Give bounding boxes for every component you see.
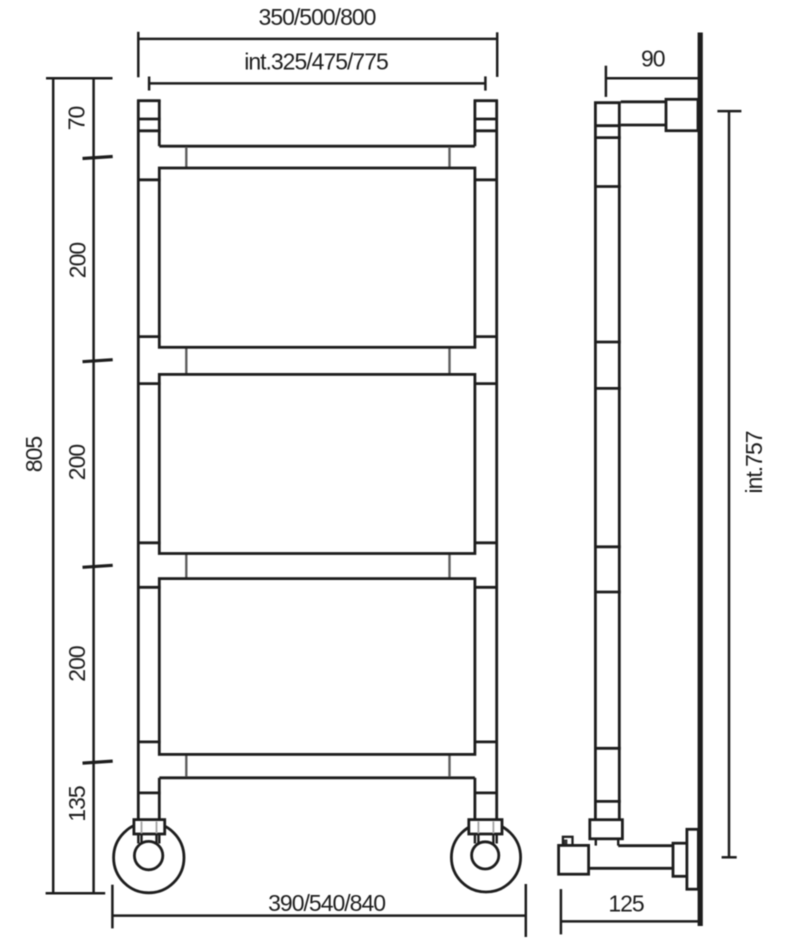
svg-text:90: 90: [641, 46, 665, 72]
svg-text:805: 805: [21, 437, 47, 473]
svg-text:200: 200: [64, 646, 90, 682]
svg-text:390/540/840: 390/540/840: [268, 890, 385, 916]
svg-text:int.325/475/775: int.325/475/775: [244, 49, 388, 75]
svg-text:200: 200: [65, 243, 91, 279]
svg-text:350/500/800: 350/500/800: [259, 4, 376, 30]
svg-text:135: 135: [64, 786, 90, 822]
svg-text:125: 125: [608, 891, 644, 917]
svg-text:70: 70: [64, 107, 90, 131]
svg-text:int.757: int.757: [741, 431, 767, 493]
svg-text:200: 200: [64, 445, 90, 481]
